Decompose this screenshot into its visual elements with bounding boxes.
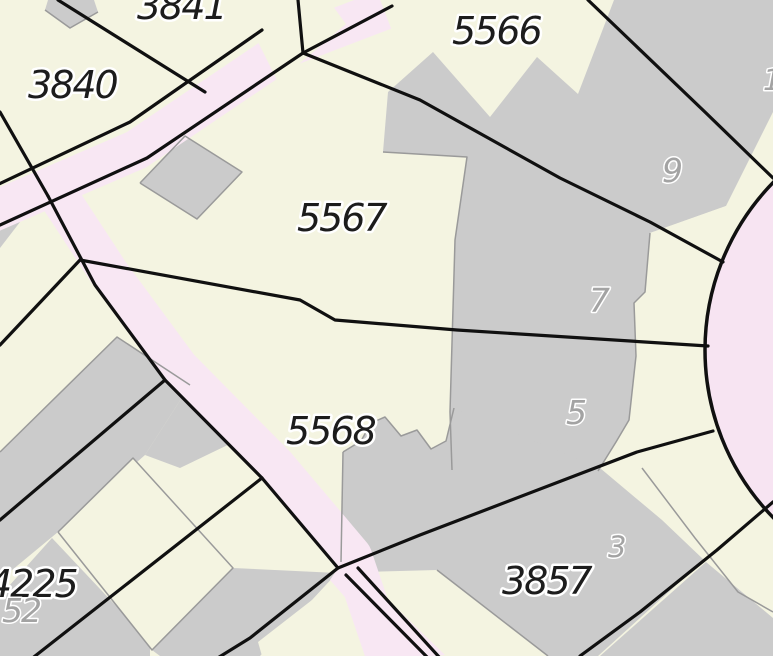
house-number-7: 7 bbox=[589, 281, 610, 320]
parcel-label-5567: 5567 bbox=[297, 196, 388, 240]
house-number-5: 5 bbox=[566, 393, 586, 432]
parcel-label-3857: 3857 bbox=[502, 559, 593, 603]
parcel-label-3841: 3841 bbox=[137, 0, 226, 28]
house-number-3: 3 bbox=[608, 530, 625, 564]
house-number-52: 52 bbox=[2, 591, 40, 630]
parcel-label-5566: 5566 bbox=[452, 9, 542, 53]
house-number-9: 9 bbox=[662, 151, 681, 190]
house-number-1: 1 bbox=[763, 63, 773, 97]
parcel-label-3840: 3840 bbox=[28, 63, 118, 107]
cadastral-map[interactable]: 38413840556655675568385742259753521 bbox=[0, 0, 773, 656]
parcel-label-5568: 5568 bbox=[286, 409, 376, 453]
map-canvas[interactable]: 38413840556655675568385742259753521 bbox=[0, 0, 773, 656]
